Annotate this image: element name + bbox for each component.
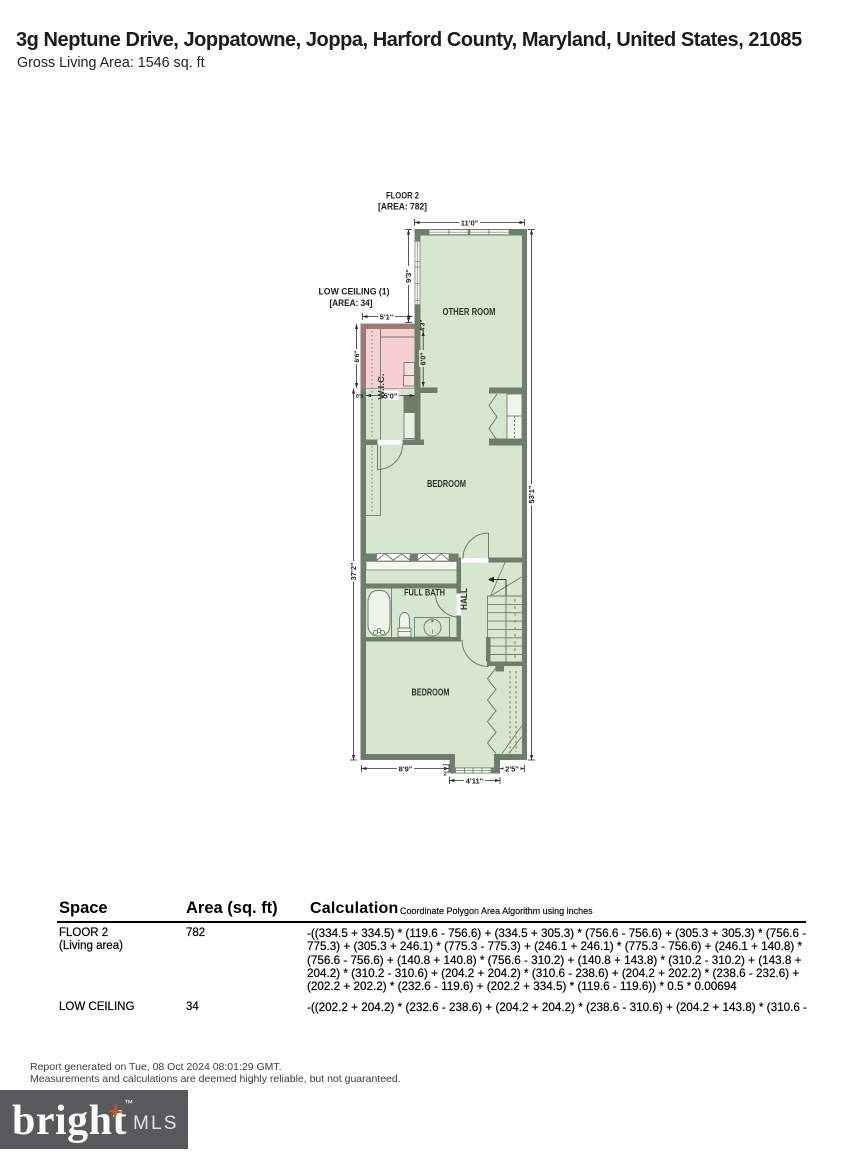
svg-text:BEDROOM: BEDROOM: [412, 688, 450, 699]
svg-text:5'1": 5'1": [380, 312, 394, 321]
svg-text:LOW CEILING (1): LOW CEILING (1): [319, 287, 390, 298]
svg-text:W.I.C.: W.I.C.: [376, 374, 386, 400]
svg-text:4'3": 4'3": [420, 320, 427, 332]
svg-text:4'11": 4'11": [466, 776, 484, 785]
svg-text:2": 2": [444, 772, 450, 778]
svg-text:HALL: HALL: [459, 588, 469, 610]
svg-text:6'0": 6'0": [421, 352, 428, 365]
svg-text:[AREA: 34]: [AREA: 34]: [330, 298, 373, 309]
svg-text:37'2": 37'2": [349, 562, 358, 580]
svg-text:0'5: 0'5: [356, 394, 363, 400]
svg-text:2'5": 2'5": [505, 764, 519, 773]
svg-text:53'1": 53'1": [527, 485, 536, 503]
svg-text:11'0": 11'0": [461, 218, 479, 227]
svg-text:[AREA: 782]: [AREA: 782]: [378, 202, 427, 213]
svg-text:9'3": 9'3": [404, 269, 413, 283]
svg-text:8'9": 8'9": [399, 764, 413, 773]
svg-text:FULL BATH: FULL BATH: [404, 588, 445, 598]
svg-text:6'6": 6'6": [354, 351, 361, 363]
svg-text:BEDROOM: BEDROOM: [427, 479, 466, 490]
svg-text:FLOOR 2: FLOOR 2: [386, 191, 419, 202]
svg-text:OTHER ROOM: OTHER ROOM: [443, 307, 496, 318]
